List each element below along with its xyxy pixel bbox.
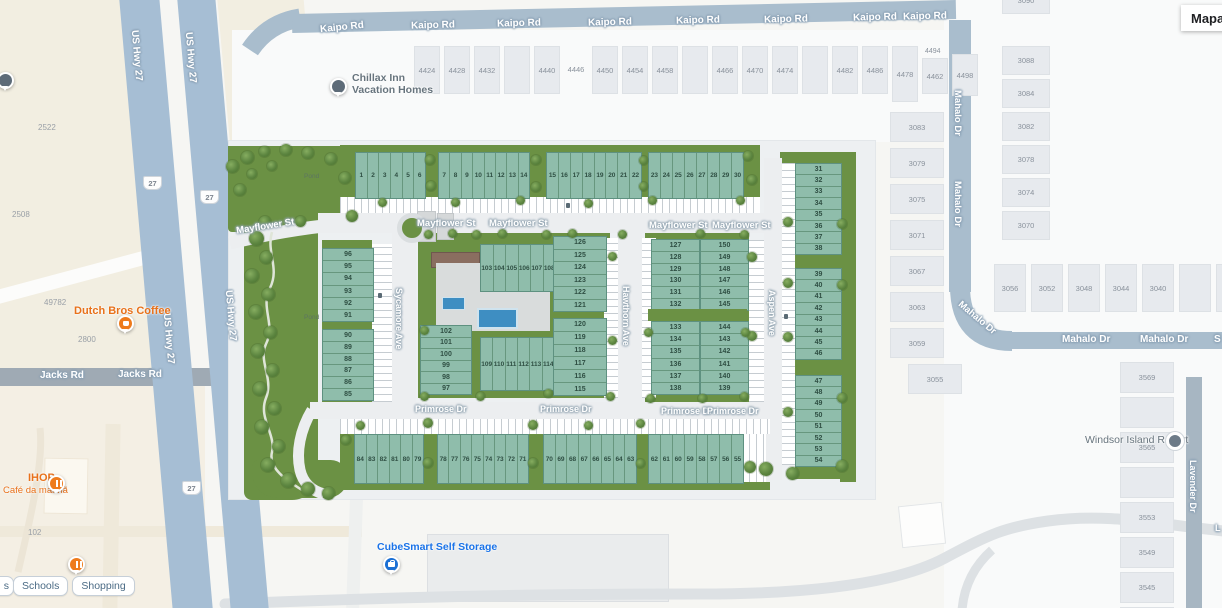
- lot-number: 11: [484, 153, 495, 198]
- lot-number: 13: [506, 153, 517, 198]
- tree-icon: [259, 146, 270, 157]
- lot-group: 848382818079: [354, 434, 424, 484]
- lot-number: 92: [323, 297, 373, 309]
- tree-icon: [837, 393, 847, 403]
- lot-number: 42: [796, 302, 841, 313]
- tree-icon: [639, 182, 648, 191]
- tree-icon: [644, 328, 653, 337]
- lot-number: 130: [652, 274, 699, 286]
- tree-icon: [747, 252, 757, 262]
- lot-number: 112: [517, 338, 529, 390]
- lot-number: 20: [605, 153, 617, 198]
- pond-label: Pond: [304, 173, 319, 180]
- lot-group: 103104105106107108: [480, 244, 556, 292]
- tree-icon: [341, 435, 351, 445]
- lot-number: 37: [796, 231, 841, 242]
- road-label: Kaipo Rd: [588, 16, 632, 28]
- lot-number: 103: [481, 245, 493, 291]
- lot-number: 47: [796, 376, 841, 386]
- tree-icon: [266, 364, 279, 377]
- lot-number: 125: [554, 249, 606, 262]
- lot-number: 134: [652, 333, 699, 345]
- tree-icon: [636, 459, 645, 468]
- tree-icon: [448, 229, 457, 238]
- lot-number: 29: [719, 153, 731, 198]
- tree-icon: [234, 184, 246, 196]
- lot-number: 110: [492, 338, 504, 390]
- tree-icon: [783, 217, 793, 227]
- tree-icon: [528, 458, 538, 468]
- tree-icon: [759, 462, 773, 476]
- lot-number: 82: [377, 435, 389, 483]
- tree-icon: [426, 181, 436, 191]
- lot-number: 66: [590, 435, 602, 483]
- tree-icon: [741, 328, 750, 337]
- lot-number: 34: [796, 197, 841, 208]
- green-sep: [648, 309, 747, 321]
- pool: [477, 308, 518, 329]
- road-label-fragment: L: [1215, 523, 1221, 533]
- lot-number: 21: [617, 153, 629, 198]
- tree-icon: [498, 229, 507, 238]
- lot-number: 87: [323, 364, 373, 376]
- lot-number: 79: [412, 435, 424, 483]
- lot-group: 908988878685: [322, 329, 374, 401]
- lot-number: 5: [402, 153, 414, 198]
- tree-icon: [837, 219, 847, 229]
- lot-number: 17: [570, 153, 582, 198]
- lot-number: 7: [439, 153, 449, 198]
- lot-number: 99: [421, 360, 471, 372]
- lot-number: 77: [448, 435, 459, 483]
- lot-number: 25: [672, 153, 684, 198]
- map-canvas[interactable]: 27 27 27 4424442844324440444644504454445…: [0, 0, 1222, 608]
- lot-number: 69: [555, 435, 567, 483]
- lot-number: 50: [796, 409, 841, 420]
- lot-number: 64: [613, 435, 625, 483]
- street-label: Primrose Dr: [415, 404, 467, 414]
- tree-icon: [268, 402, 281, 415]
- tree-icon: [420, 326, 429, 335]
- lot-number: 131: [652, 286, 699, 298]
- lot-number: 23: [649, 153, 660, 198]
- street-label: Mayflower St: [712, 220, 771, 231]
- tree-icon: [302, 147, 314, 159]
- lot-number: 83: [366, 435, 378, 483]
- parking-strip: [340, 419, 770, 434]
- lot-number: 18: [582, 153, 594, 198]
- coffee-cup-icon: [123, 321, 129, 326]
- street-label: Aspen Ave: [767, 290, 777, 336]
- lot-number: 31: [796, 164, 841, 174]
- tree-icon: [747, 175, 757, 185]
- lot-number: 51: [796, 421, 841, 432]
- lot-number: 89: [323, 341, 373, 353]
- lot-number: 63: [624, 435, 636, 483]
- lot-number: 70: [544, 435, 555, 483]
- tree-icon: [255, 420, 269, 434]
- lot-number: 4: [390, 153, 402, 198]
- lot-number: 12: [495, 153, 506, 198]
- lot-number: 146: [701, 286, 748, 298]
- lot-number: 74: [483, 435, 494, 483]
- lot-number: 41: [796, 291, 841, 302]
- pond-label: Pond: [304, 314, 319, 321]
- tree-icon: [608, 252, 617, 261]
- tree-icon: [740, 392, 749, 401]
- tree-icon: [786, 467, 799, 480]
- lot-number: 76: [460, 435, 471, 483]
- lot-number: 91: [323, 309, 373, 321]
- tree-icon: [295, 216, 306, 227]
- tree-icon: [339, 172, 351, 184]
- lot-number: 142: [701, 345, 748, 357]
- lot-number: 15: [547, 153, 558, 198]
- lot-number: 56: [719, 435, 731, 483]
- lot-number: 40: [796, 279, 841, 290]
- lot-number: 49: [796, 398, 841, 409]
- tree-icon: [744, 461, 756, 473]
- lot-number: 109: [481, 338, 492, 390]
- lot-number: 121: [554, 299, 606, 312]
- lot-number: 93: [323, 285, 373, 297]
- tree-icon: [783, 278, 793, 288]
- lot-group: 969594939291: [322, 248, 374, 322]
- lot-number: 32: [796, 174, 841, 185]
- chillax-inn-label[interactable]: Chillax InnVacation Homes: [352, 72, 433, 96]
- lot-number: 140: [701, 370, 748, 382]
- lot-number: 78: [438, 435, 448, 483]
- lot-number: 137: [652, 370, 699, 382]
- lot-number: 58: [696, 435, 708, 483]
- lot-number: 71: [517, 435, 528, 483]
- lot-number: 120: [554, 319, 606, 331]
- tree-icon: [608, 336, 617, 345]
- lot-number: 6: [413, 153, 425, 198]
- street-label: Primrose Dr: [661, 406, 713, 416]
- lot-number: 73: [494, 435, 505, 483]
- tree-icon: [251, 344, 265, 358]
- lot-number: 138: [652, 382, 699, 394]
- lot-number: 46: [796, 348, 841, 359]
- lot-group: 7069686766656463: [543, 434, 637, 484]
- street-label: Primrose Dr: [707, 406, 759, 416]
- lot-number: 86: [323, 376, 373, 388]
- lot-number: 68: [566, 435, 578, 483]
- tree-icon: [648, 196, 657, 205]
- tree-icon: [472, 230, 481, 239]
- parking-strip: [372, 244, 392, 402]
- lot-number: 81: [389, 435, 401, 483]
- tree-icon: [544, 389, 553, 398]
- road-label: Mahalo Dr: [1062, 334, 1110, 345]
- tree-icon: [424, 230, 433, 239]
- tree-icon: [736, 196, 745, 205]
- road-label: Kaipo Rd: [497, 17, 541, 29]
- pool: [442, 297, 465, 310]
- lot-number: 8: [449, 153, 460, 198]
- lot-number: 122: [554, 286, 606, 299]
- lot-number: 98: [421, 371, 471, 383]
- restaurant-icon: [56, 480, 58, 487]
- map-type-button[interactable]: Mapa: [1181, 5, 1222, 31]
- tree-icon: [639, 156, 648, 165]
- lot-group: 7877767574737271: [437, 434, 529, 484]
- road-label: Mahalo Dr: [1140, 334, 1188, 345]
- lot-group: 7891011121314: [438, 152, 530, 199]
- lot-number: 94: [323, 272, 373, 284]
- lot-group: 126125124123122121: [553, 236, 607, 312]
- cubesmart-pin[interactable]: [383, 556, 400, 573]
- dutch-bros-pin[interactable]: [117, 315, 134, 332]
- lot-number: 101: [421, 337, 471, 349]
- lot-group: 2324252627282930: [648, 152, 744, 199]
- lot-number: 90: [323, 330, 373, 341]
- road-label: Kaipo Rd: [676, 14, 720, 26]
- tree-icon: [568, 229, 577, 238]
- tree-icon: [837, 280, 847, 290]
- street-label: Primrose Dr: [540, 404, 592, 414]
- lot-number: 60: [672, 435, 684, 483]
- filter-chip[interactable]: Shopping: [72, 576, 134, 596]
- lot-group: 4748495051525354: [795, 375, 842, 467]
- lot-number: 85: [323, 388, 373, 400]
- cubesmart-label[interactable]: CubeSmart Self Storage: [377, 541, 497, 553]
- tree-icon: [476, 392, 485, 401]
- parking-symbol: [378, 293, 382, 298]
- lot-number: 104: [493, 245, 506, 291]
- lot-number: 129: [652, 263, 699, 275]
- tree-icon: [249, 305, 263, 319]
- lot-group: 3132333435363738: [795, 163, 842, 255]
- tree-icon: [247, 169, 257, 179]
- tree-icon: [783, 332, 793, 342]
- lot-number: 95: [323, 260, 373, 272]
- lot-number: 2: [367, 153, 379, 198]
- lot-number: 141: [701, 358, 748, 370]
- lot-number: 28: [707, 153, 719, 198]
- lot-number: 26: [684, 153, 696, 198]
- tree-icon: [531, 155, 541, 165]
- lot-number: 97: [421, 383, 471, 395]
- tree-icon: [260, 251, 273, 264]
- lot-number: 27: [696, 153, 708, 198]
- tree-icon: [423, 418, 433, 428]
- lot-number: 115: [554, 382, 606, 395]
- road-label-fragment: S: [1214, 334, 1221, 345]
- lot-number: 62: [649, 435, 660, 483]
- tree-icon: [280, 144, 292, 156]
- lot-number: 100: [421, 348, 471, 360]
- tree-icon: [262, 288, 275, 301]
- lot-number: 133: [652, 322, 699, 333]
- tree-icon: [267, 161, 277, 171]
- lot-number: 123: [554, 274, 606, 287]
- lot-number: 24: [660, 153, 672, 198]
- tree-icon: [261, 458, 275, 472]
- lot-group: 3940414243444546: [795, 268, 842, 360]
- lot-number: 44: [796, 325, 841, 336]
- lot-number: 116: [554, 369, 606, 382]
- tree-icon: [606, 392, 615, 401]
- lot-number: 150: [701, 240, 748, 251]
- lot-number: 135: [652, 345, 699, 357]
- lot-number: 107: [530, 245, 543, 291]
- lot-number: 75: [471, 435, 482, 483]
- lot-number: 128: [652, 251, 699, 263]
- tree-icon: [264, 326, 277, 339]
- tree-icon: [226, 160, 239, 173]
- lot-group: 1516171819202122: [546, 152, 642, 199]
- lot-number: 43: [796, 314, 841, 325]
- lot-number: 126: [554, 237, 606, 249]
- tree-icon: [356, 421, 365, 430]
- lot-group: 133134135136137138: [651, 321, 700, 395]
- tree-icon: [272, 440, 285, 453]
- lot-number: 33: [796, 186, 841, 197]
- tree-icon: [646, 394, 655, 403]
- street-label: Sycamore Ave: [394, 288, 404, 349]
- road-label: Mahalo Dr: [952, 90, 963, 136]
- tree-icon: [425, 155, 435, 165]
- tree-icon: [618, 230, 627, 239]
- road-label: Kaipo Rd: [764, 13, 808, 25]
- lot-number: 39: [796, 269, 841, 279]
- lot-number: 149: [701, 251, 748, 263]
- lot-number: 136: [652, 358, 699, 370]
- lot-group: 150149148147146145: [700, 239, 749, 311]
- lot-group: 6261605958575655: [648, 434, 744, 484]
- lot-number: 38: [796, 243, 841, 254]
- tree-icon: [301, 482, 315, 496]
- lot-number: 84: [355, 435, 366, 483]
- lot-number: 65: [601, 435, 613, 483]
- street-label: Mayflower St: [489, 218, 548, 229]
- tree-icon: [516, 196, 525, 205]
- street-label: Mayflower St: [649, 220, 708, 231]
- lot-number: 55: [731, 435, 743, 483]
- street-label: Hawthorn Ave: [621, 286, 631, 346]
- restaurant-icon: [76, 561, 78, 568]
- lot-number: 16: [558, 153, 570, 198]
- lot-number: 67: [578, 435, 590, 483]
- lot-number: 96: [323, 249, 373, 260]
- filter-chip-cut[interactable]: s: [0, 576, 14, 596]
- lot-number: 117: [554, 356, 606, 369]
- lot-number: 124: [554, 261, 606, 274]
- road-label: Mahalo Dr: [952, 181, 963, 227]
- tree-icon: [542, 230, 551, 239]
- tree-icon: [531, 182, 541, 192]
- lot-number: 10: [472, 153, 483, 198]
- road-label: Lavender Dr: [1188, 460, 1198, 513]
- lot-number: 53: [796, 443, 841, 454]
- lot-group: 109110111112113114: [480, 337, 555, 391]
- road-label: Jacks Rd: [118, 369, 162, 380]
- tree-icon: [584, 421, 593, 430]
- parking-symbol: [784, 314, 788, 319]
- parking-strip: [340, 197, 760, 213]
- ihop-pin[interactable]: [48, 475, 65, 492]
- tree-icon: [241, 151, 254, 164]
- restaurant-pin[interactable]: [68, 556, 85, 573]
- tree-icon: [281, 473, 296, 488]
- lot-number: 48: [796, 386, 841, 397]
- lot-number: 119: [554, 331, 606, 344]
- lot-number: 52: [796, 432, 841, 443]
- tree-icon: [584, 199, 593, 208]
- lot-number: 127: [652, 240, 699, 251]
- lot-number: 61: [660, 435, 672, 483]
- tree-icon: [743, 151, 753, 161]
- lot-number: 80: [400, 435, 412, 483]
- lot-group: 120119118117116115: [553, 318, 607, 396]
- lot-group: 127128129130131132: [651, 239, 700, 311]
- chillax-inn-pin[interactable]: [330, 78, 347, 95]
- tree-icon: [451, 198, 460, 207]
- road-label: Kaipo Rd: [903, 10, 947, 22]
- lot-number: 105: [505, 245, 518, 291]
- tree-icon: [346, 210, 358, 222]
- tree-icon: [420, 392, 429, 401]
- lot-number: 45: [796, 336, 841, 347]
- tree-icon: [325, 153, 337, 165]
- lot-number: 72: [505, 435, 516, 483]
- road-label: Jacks Rd: [40, 370, 84, 381]
- road-label: Kaipo Rd: [853, 11, 897, 23]
- lot-number: 59: [684, 435, 696, 483]
- tree-icon: [528, 420, 538, 430]
- windsor-resort-dot[interactable]: [1166, 432, 1184, 450]
- lot-number: 9: [461, 153, 472, 198]
- lot-number: 35: [796, 209, 841, 220]
- lot-number: 118: [554, 344, 606, 357]
- filter-chip[interactable]: Schools: [13, 576, 68, 596]
- tree-icon: [322, 487, 335, 500]
- tree-icon: [636, 419, 645, 428]
- lot-number: 3: [378, 153, 390, 198]
- lot-group: 123456: [355, 152, 426, 199]
- lot-number: 106: [518, 245, 531, 291]
- lot-number: 147: [701, 274, 748, 286]
- parking-symbol: [566, 203, 570, 208]
- street-label: Mayflower St: [417, 218, 476, 229]
- lot-group: 102101100999897: [420, 325, 472, 395]
- lot-number: 36: [796, 220, 841, 231]
- lot-number: 102: [421, 326, 471, 337]
- lot-number: 88: [323, 353, 373, 365]
- lot-number: 148: [701, 263, 748, 275]
- tree-icon: [423, 458, 433, 468]
- storage-bag-icon: [388, 562, 395, 567]
- lot-number: 113: [529, 338, 541, 390]
- lot-number: 30: [731, 153, 743, 198]
- tree-icon: [836, 460, 848, 472]
- filter-chips: SchoolsShopping: [13, 576, 135, 596]
- lot-number: 14: [518, 153, 529, 198]
- lot-number: 111: [505, 338, 517, 390]
- tree-icon: [698, 394, 707, 403]
- tree-icon: [253, 382, 267, 396]
- lot-number: 19: [594, 153, 606, 198]
- lot-number: 54: [796, 455, 841, 466]
- lot-number: 1: [356, 153, 367, 198]
- road-label: Kaipo Rd: [411, 19, 455, 31]
- lot-number: 57: [707, 435, 719, 483]
- tree-icon: [378, 198, 387, 207]
- tree-icon: [783, 407, 793, 417]
- tree-icon: [245, 269, 259, 283]
